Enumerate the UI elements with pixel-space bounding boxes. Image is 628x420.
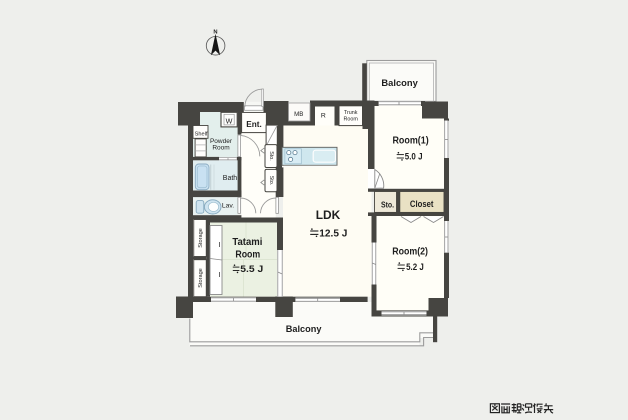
svg-text:Balcony: Balcony — [381, 78, 418, 89]
svg-text:Ent.: Ent. — [246, 119, 262, 129]
svg-text:Storage: Storage — [198, 268, 204, 288]
svg-text:Bath: Bath — [223, 175, 238, 182]
svg-text:Sto.: Sto. — [268, 151, 274, 161]
svg-text:Room(1): Room(1) — [392, 136, 428, 147]
svg-text:Sto.: Sto. — [268, 176, 274, 186]
svg-text:Lav.: Lav. — [222, 203, 234, 210]
svg-text:N: N — [213, 30, 217, 36]
svg-text:12.5 J: 12.5 J — [319, 228, 347, 239]
svg-text:Closet: Closet — [410, 199, 434, 209]
svg-text:Room: Room — [344, 116, 359, 122]
svg-text:LDK: LDK — [316, 208, 341, 222]
svg-text:Shelf: Shelf — [195, 131, 208, 137]
svg-text:Balcony: Balcony — [286, 324, 322, 335]
svg-text:Trunk: Trunk — [344, 110, 358, 116]
svg-text:Room: Room — [235, 249, 260, 260]
svg-text:Tatami: Tatami — [232, 237, 262, 248]
svg-text:Room: Room — [212, 145, 229, 152]
svg-text:R: R — [321, 113, 326, 120]
svg-text:5.5 J: 5.5 J — [240, 264, 263, 275]
svg-text:5.2 J: 5.2 J — [406, 262, 424, 273]
svg-text:Storage: Storage — [198, 228, 204, 248]
svg-text:5.0 J: 5.0 J — [405, 151, 423, 162]
svg-text:MB: MB — [294, 111, 303, 118]
svg-text:Room(2): Room(2) — [392, 246, 428, 257]
svg-text:Sto.: Sto. — [381, 201, 394, 210]
svg-text:W: W — [226, 117, 233, 126]
